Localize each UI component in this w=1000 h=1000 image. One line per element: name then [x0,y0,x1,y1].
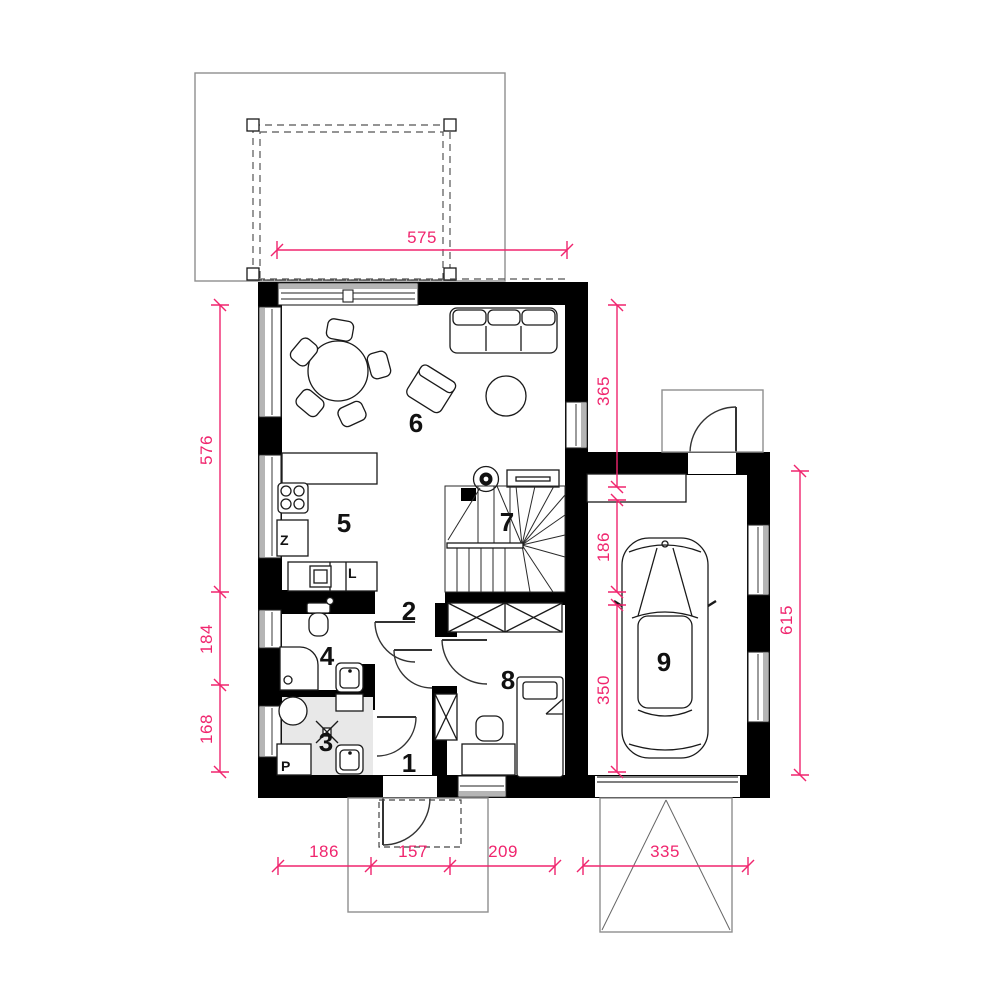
water-heater [279,697,307,725]
floor-plan-page: 1 2 3 4 5 6 7 8 9 Z L P [0,0,1000,1000]
dim-left-184: 184 [197,624,216,654]
room8-window [458,776,506,797]
room-label-8: 8 [501,665,515,695]
freezer-label: Z [280,532,289,548]
kitchen-sink [310,566,331,587]
entry-door [383,798,430,845]
garage-window-1 [748,525,769,595]
side-entry-door [690,407,736,452]
hall-door [394,650,432,688]
floor-plan-drawing: 1 2 3 4 5 6 7 8 9 Z L P [0,0,1000,1000]
terrace-slider-window [278,283,418,305]
stair-treads [448,486,565,592]
desk [462,744,515,775]
dim-bottom-186: 186 [309,842,339,861]
terrace-pergola-inner [260,132,443,280]
dim-right-186: 186 [594,532,613,562]
cooktop [278,483,308,513]
stair-handrail [447,543,523,548]
living-window [259,307,281,417]
bath-sink [336,745,363,774]
bath-cabinet [336,694,363,711]
dim-bottom-335: 335 [650,842,680,861]
sofa [450,308,557,353]
staircase [445,486,565,592]
driveway [600,798,732,932]
wc-sink [336,663,363,692]
room-label-7: 7 [500,507,514,537]
fridge-label: L [348,565,357,581]
room-label-5: 5 [337,508,351,538]
terrace-posts [247,119,456,280]
entry-door-opening [383,776,437,797]
room-label-2: 2 [402,596,416,626]
room-label-4: 4 [320,641,335,671]
dim-terrace-width: 575 [407,228,437,247]
dim-left-168: 168 [197,714,216,744]
dim-bottom-157: 157 [398,842,428,861]
kitchen-furniture [277,453,377,591]
garage-door-opening [595,776,740,797]
pouf-table [486,376,526,416]
side-door-opening [688,453,736,474]
dim-right-350: 350 [594,675,613,705]
shower [280,647,318,690]
dim-right-total-615: 615 [777,605,796,635]
room-label-9: 9 [657,647,671,677]
desk-chair [476,716,503,741]
garage-contents [587,474,716,758]
tall-cabinet [435,694,457,740]
side-porch [662,390,763,452]
fireplace-stove [474,467,499,492]
kitchen-counter-bottom [288,562,377,591]
radiator [507,470,559,487]
toilet [307,598,334,637]
wc-window [259,610,281,648]
dim-bottom-209: 209 [488,842,518,861]
room-label-6: 6 [409,408,423,438]
entry-canopy [379,800,461,847]
dim-left-576: 576 [197,435,216,465]
washer-label: P [281,758,290,774]
bed [517,677,563,777]
garage-window-2 [748,652,769,722]
dim-right-365: 365 [594,376,613,406]
living-east-window [566,402,587,448]
room8-door [442,640,487,684]
room-label-1: 1 [402,748,416,778]
wardrobe [448,603,562,632]
room-label-3: 3 [319,727,333,757]
terrace-pergola-outline [253,125,450,280]
kitchen-counter-top [282,453,377,484]
workbench [587,474,686,502]
